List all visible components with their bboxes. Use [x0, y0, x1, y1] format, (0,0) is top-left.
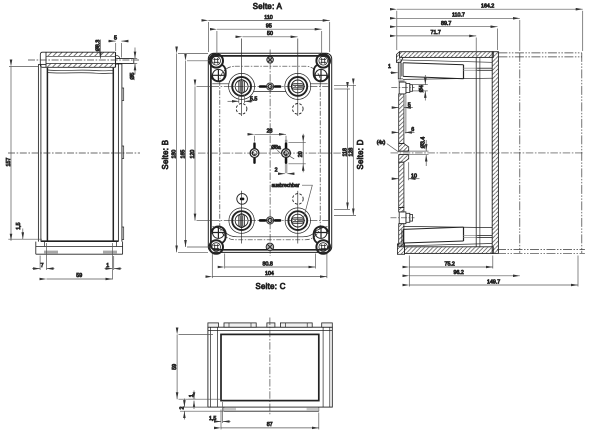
svg-text:20: 20: [298, 151, 304, 157]
svg-text:1: 1: [388, 64, 391, 70]
svg-text:71.7: 71.7: [431, 30, 441, 36]
svg-text:1: 1: [189, 394, 195, 397]
svg-text:Seite: D: Seite: D: [356, 139, 365, 169]
svg-text:2: 2: [179, 407, 185, 410]
svg-text:165: 165: [181, 150, 187, 159]
svg-text:(4x): (4x): [377, 140, 386, 146]
svg-text:1,5: 1,5: [16, 222, 22, 229]
svg-text:96.2: 96.2: [454, 270, 464, 276]
svg-text:7: 7: [41, 263, 44, 269]
svg-text:120: 120: [190, 150, 196, 159]
svg-text:1,5: 1,5: [209, 416, 216, 422]
svg-text:59: 59: [76, 273, 82, 279]
svg-text:Ø5: Ø5: [130, 72, 136, 79]
svg-text:6: 6: [411, 127, 414, 133]
svg-text:5: 5: [114, 35, 117, 41]
svg-text:59: 59: [172, 364, 178, 370]
svg-text:157: 157: [6, 158, 12, 167]
svg-text:10: 10: [411, 174, 417, 180]
svg-text:ausbrechbar: ausbrechbar: [272, 183, 300, 189]
svg-text:95: 95: [266, 24, 272, 30]
svg-text:5: 5: [408, 102, 411, 108]
svg-text:164.2: 164.2: [481, 4, 494, 10]
svg-text:Ø8a: Ø8a: [271, 145, 281, 151]
svg-text:Ø4: Ø4: [419, 85, 425, 92]
svg-text:1: 1: [106, 263, 109, 269]
svg-text:Ø3.4: Ø3.4: [420, 137, 426, 149]
svg-text:Seite: A: Seite: A: [253, 2, 283, 11]
svg-text:110.7: 110.7: [452, 13, 465, 19]
svg-text:75.2: 75.2: [445, 261, 455, 267]
svg-text:5.5: 5.5: [250, 96, 257, 102]
svg-text:Seite: B: Seite: B: [161, 140, 170, 170]
svg-text:2: 2: [275, 168, 278, 174]
svg-text:110: 110: [264, 15, 272, 21]
svg-text:128: 128: [348, 148, 354, 157]
svg-text:149.7: 149.7: [487, 279, 500, 285]
svg-text:80.8: 80.8: [263, 261, 273, 267]
svg-text:Seite: C: Seite: C: [256, 282, 286, 291]
svg-text:28: 28: [267, 129, 273, 135]
svg-text:Ø8.3: Ø8.3: [96, 40, 102, 52]
svg-text:104: 104: [265, 271, 274, 277]
svg-text:50: 50: [267, 31, 273, 37]
svg-text:89.7: 89.7: [441, 21, 451, 27]
svg-text:180: 180: [172, 150, 178, 159]
svg-text:87: 87: [267, 422, 273, 428]
